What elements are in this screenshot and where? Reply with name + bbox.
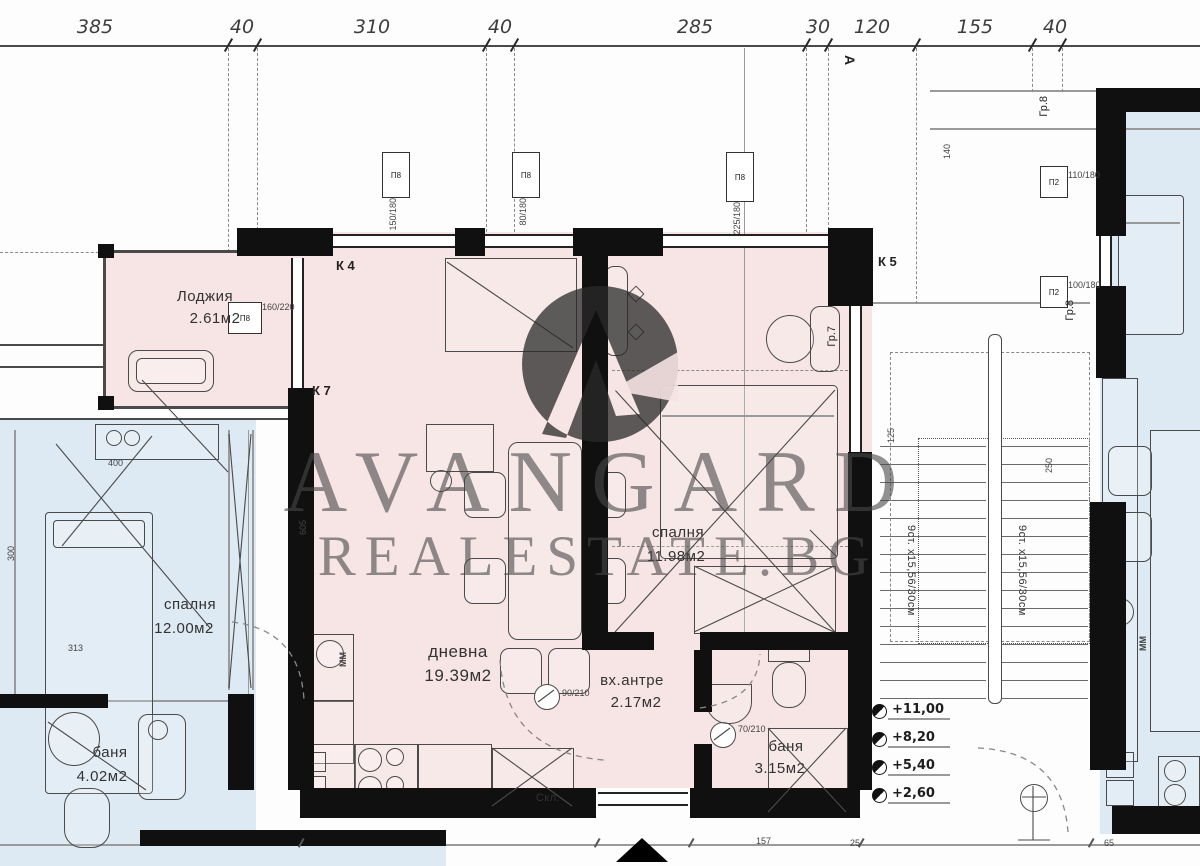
washer-label-right: ММ <box>1138 636 1148 651</box>
sink-right-bath <box>706 684 752 724</box>
stair-text-left: 9ст. х15,56/30см <box>905 525 917 650</box>
bath-right-area: 3.15м2 <box>755 760 806 777</box>
loggia-area: 2.61м2 <box>190 310 241 327</box>
misc-dim-140: 140 <box>942 144 952 159</box>
axis-dash <box>828 48 829 230</box>
dim-285: 285 <box>677 16 713 38</box>
axis-dash <box>1062 48 1063 92</box>
radiator-symbol <box>1020 784 1048 812</box>
level-symbol <box>872 732 887 747</box>
misc-dim-25: 25 <box>850 838 860 848</box>
marker-gr8-mid: Гр.8 <box>1064 300 1076 321</box>
misc-dim-313: 313 <box>68 643 83 653</box>
bath-left-name: баня <box>93 744 128 761</box>
window-tag-loggia-size: 160/220 <box>262 302 295 312</box>
loggia-wall <box>103 406 293 409</box>
bath-right-name: баня <box>769 738 804 755</box>
misc-dim-300: 300 <box>6 546 16 561</box>
wall <box>455 228 485 256</box>
bed-left-pillow <box>53 520 145 548</box>
stove-burner <box>386 748 404 766</box>
bath-left-area: 4.02м2 <box>77 768 128 785</box>
dim-385: 385 <box>77 16 113 38</box>
toilet-right-bath <box>772 662 806 708</box>
bedroom-left-name: спалня <box>164 596 216 613</box>
dim-155: 155 <box>957 16 993 38</box>
window-tag-top2: П8 <box>512 152 540 198</box>
wall-corner <box>98 244 114 258</box>
marker-gr8-top: Гр.8 <box>1038 96 1050 117</box>
window-tag-top2-size: 80/180 <box>518 198 528 226</box>
door-tag-circle <box>710 722 736 748</box>
window-tag-right1-size: 110/180 <box>1068 170 1100 180</box>
wall <box>1096 88 1126 236</box>
level-symbol <box>872 704 887 719</box>
wall <box>237 228 333 256</box>
wall <box>1096 286 1126 378</box>
level-underline <box>888 802 950 804</box>
watermark-line2: REALESTATE.BG <box>318 524 879 589</box>
misc-dim-250: 250 <box>1044 458 1054 473</box>
axis-dash <box>514 48 515 232</box>
level-5: +5,40 <box>892 758 935 773</box>
wall <box>228 694 254 790</box>
dash-line <box>612 370 848 371</box>
window-tag-top3: П8 <box>726 152 754 202</box>
door-tag-2: 70/210 <box>738 724 766 734</box>
wall-column-k5 <box>828 228 873 306</box>
level-8: +8,20 <box>892 730 935 745</box>
wall <box>694 650 712 712</box>
misc-dim-157: 157 <box>756 836 771 846</box>
left-apt-wall <box>228 430 230 690</box>
window-tag-right2-size: 100/180 <box>1068 280 1101 290</box>
bedroom-left-area: 12.00м2 <box>154 620 214 637</box>
wall-corner <box>98 396 114 410</box>
wall <box>0 694 108 708</box>
axis-marker-a: А <box>842 55 858 65</box>
bed-right-apt <box>1118 195 1184 335</box>
wall <box>1125 88 1200 112</box>
axis-dash <box>916 48 917 304</box>
level-11: +11,00 <box>892 702 944 717</box>
table-right-apt <box>1150 430 1200 732</box>
washer-label-left: ММ <box>338 652 348 667</box>
stove-burner <box>1164 784 1186 806</box>
bedroom-table <box>766 315 814 363</box>
level-symbol <box>872 760 887 775</box>
axis-dash <box>806 48 807 232</box>
dim-40b: 40 <box>488 16 512 38</box>
axis-dash <box>257 48 258 250</box>
entry-name: вх.антре <box>600 672 664 689</box>
storage-label: Скл. <box>536 792 560 804</box>
dim-30: 30 <box>806 16 830 38</box>
wall <box>140 830 446 846</box>
floor-plan-canvas: 385 40 310 40 285 30 120 155 40 А <box>0 0 1200 866</box>
window <box>333 234 455 248</box>
decor-item <box>124 430 140 446</box>
dim-40a: 40 <box>230 16 254 38</box>
dim-310: 310 <box>354 16 390 38</box>
top-dimension-line <box>0 45 1200 47</box>
chair <box>500 648 542 694</box>
window-tag-top1: П8 <box>382 152 410 198</box>
bottom-left-fill <box>0 846 446 866</box>
toilet-left-bath <box>64 788 110 848</box>
loggia-wall <box>103 250 243 253</box>
level-underline <box>888 718 950 720</box>
living-area: 19.39м2 <box>424 666 491 686</box>
dim-120: 120 <box>854 16 890 38</box>
wall <box>1090 502 1126 770</box>
window <box>849 306 862 452</box>
left-apt-wall <box>252 430 254 690</box>
level-underline <box>888 774 950 776</box>
window <box>663 234 828 248</box>
wardrobe-living <box>445 258 577 352</box>
misc-dim-400: 400 <box>108 458 123 468</box>
line <box>0 418 292 420</box>
watermark-line1: AVANGARD <box>284 432 917 533</box>
wall <box>582 632 654 650</box>
window-tag-right1: П2 <box>1040 166 1068 198</box>
bed-right-apt-line <box>1120 222 1180 224</box>
living-name: дневна <box>428 642 488 662</box>
level-underline <box>888 746 950 748</box>
loggia-wall <box>103 250 106 410</box>
window-tag-top1-size: 150/180 <box>388 198 398 231</box>
entrance-door-threshold <box>598 792 688 806</box>
level-symbol <box>872 788 887 803</box>
loggia-bench-cushion <box>136 358 206 384</box>
cabinet <box>1106 780 1134 806</box>
chair <box>1108 446 1152 496</box>
stove-burner <box>1164 760 1186 782</box>
dim-tick <box>688 838 694 847</box>
wall <box>1112 806 1200 834</box>
axis-dash <box>228 48 229 252</box>
line <box>0 366 103 368</box>
stair-text-right: 9ст. х15,56/30см <box>1016 525 1028 650</box>
axis-dash <box>1032 48 1033 92</box>
wall <box>700 632 872 650</box>
marker-k5: К 5 <box>878 254 897 269</box>
wall <box>694 744 712 790</box>
marker-k7: К 7 <box>312 383 331 398</box>
door-tag-circle <box>534 684 560 710</box>
dim-40c: 40 <box>1043 16 1067 38</box>
axis-dash <box>486 48 487 232</box>
window <box>485 234 573 248</box>
dim-tick <box>1088 838 1094 847</box>
door-tag-1: 90/210 <box>562 688 590 698</box>
line <box>930 128 1200 130</box>
stair-rail <box>988 334 1002 704</box>
bathtub-drain <box>148 720 168 740</box>
level-2: +2,60 <box>892 786 935 801</box>
entry-area: 2.17м2 <box>611 694 662 711</box>
misc-dim-65: 65 <box>1104 838 1114 848</box>
dim-tick <box>594 838 600 847</box>
window <box>291 258 304 388</box>
loggia-name: Лоджия <box>177 288 233 305</box>
wall <box>690 788 860 818</box>
bed-right-headline <box>662 415 834 417</box>
line <box>0 344 103 346</box>
stove-burner <box>358 748 382 772</box>
window <box>1099 236 1112 286</box>
marker-gr7: Гр.7 <box>826 326 838 347</box>
dim-chain-line <box>14 430 16 700</box>
decor-item <box>106 430 122 446</box>
window-tag-top3-size: 225/180 <box>732 202 742 235</box>
marker-k4: К 4 <box>336 258 355 273</box>
entrance-arrow <box>616 838 668 862</box>
